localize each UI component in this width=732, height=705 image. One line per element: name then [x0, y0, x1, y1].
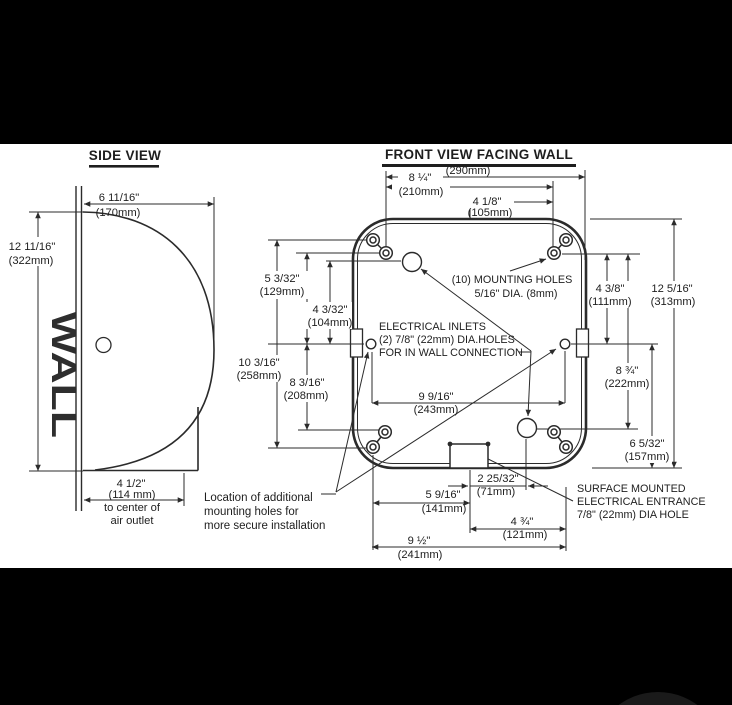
- dim-depth-in: 6 11/16": [99, 192, 139, 204]
- dim-157-in: 6 5/32": [629, 438, 664, 450]
- note-inlets-1: ELECTRICAL INLETS: [379, 321, 486, 333]
- corner-dark-circle: [592, 692, 724, 705]
- dim-141-mm: (141mm): [422, 503, 467, 515]
- electrical-inlet-hole-top: [403, 253, 422, 272]
- dim-210-mm: (210mm): [399, 186, 444, 198]
- dim-141-in: 5 9/16": [425, 489, 460, 501]
- dim-208-in: 8 3/16": [289, 377, 324, 389]
- dim-313-mm: (313mm): [651, 296, 696, 308]
- left-side-tab: [351, 329, 363, 357]
- dim-243-in: 9 9/16": [418, 391, 453, 403]
- side-title-underline: [89, 165, 159, 168]
- dim-258-in: 10 3/16": [238, 357, 279, 369]
- dim-208-mm: (208mm): [284, 390, 329, 402]
- side-screw-hole: [96, 338, 111, 353]
- dim-241-mm: (241mm): [398, 549, 443, 561]
- dim-depth-mm: (170mm): [96, 207, 141, 219]
- dim-243-mm: (243mm): [414, 404, 459, 416]
- dim-129-mm: (129mm): [260, 286, 305, 298]
- dim-71-in: 2 25/32": [477, 473, 518, 485]
- note-location-1: Location of additional: [204, 492, 313, 504]
- dim-outlet-note1: to center of: [104, 502, 161, 514]
- dim-313-in: 12 5/16": [651, 283, 692, 295]
- dim-290-mm: (290mm): [446, 165, 491, 177]
- dim-104-in: 4 3/32": [312, 304, 347, 316]
- right-side-tab: [577, 329, 589, 357]
- additional-mounting-hole-right: [560, 339, 570, 349]
- dim-111-in: 4 3/8": [596, 283, 625, 295]
- additional-mounting-hole-left: [366, 339, 376, 349]
- dim-210-in: 8 ¼": [409, 172, 432, 184]
- dim-157-mm: (157mm): [625, 451, 670, 463]
- dim-71-mm: (71mm): [477, 486, 516, 498]
- dim-121-mm: (121mm): [503, 529, 548, 541]
- note-inlets-3: FOR IN WALL CONNECTION: [379, 347, 523, 359]
- installation-drawing: SIDE VIEW FRONT VIEW FACING WALL WALL 6 …: [0, 0, 732, 705]
- bottom-notch: [448, 442, 491, 468]
- dim-222-mm: (222mm): [605, 378, 650, 390]
- note-surface-3: 7/8" (22mm) DIA HOLE: [577, 509, 689, 521]
- electrical-inlet-hole-bottom: [518, 419, 537, 438]
- dim-129-in: 5 3/32": [264, 273, 299, 285]
- note-mounting-holes-1: (10) MOUNTING HOLES: [452, 274, 573, 286]
- dim-height-mm: (322mm): [9, 255, 54, 267]
- dim-222-in: 8 ¾": [616, 365, 639, 377]
- wall-label: WALL: [44, 312, 82, 438]
- dim-241-in: 9 ½": [408, 535, 431, 547]
- front-view-title: FRONT VIEW FACING WALL: [385, 147, 573, 162]
- dim-outlet-mm: (114 mm): [108, 489, 155, 501]
- note-location-2: mounting holes for: [204, 506, 299, 518]
- dim-258-mm: (258mm): [237, 370, 282, 382]
- dim-height-in: 12 11/16": [9, 241, 56, 253]
- note-inlets-2: (2) 7/8" (22mm) DIA.HOLES: [379, 334, 515, 346]
- dim-outlet-note2: air outlet: [111, 515, 155, 527]
- dim-111-mm: (111mm): [588, 296, 631, 308]
- note-location-3: more secure installation: [204, 520, 325, 532]
- side-view-title: SIDE VIEW: [89, 148, 161, 163]
- dim-121-in: 4 ¾": [511, 516, 534, 528]
- dim-104-mm: (104mm): [308, 317, 353, 329]
- note-surface-2: ELECTRICAL ENTRANCE: [577, 496, 706, 508]
- note-mounting-holes-2: 5/16" DIA. (8mm): [474, 288, 557, 300]
- screen: SIDE VIEW FRONT VIEW FACING WALL WALL 6 …: [0, 0, 732, 705]
- dim-105-mm: (105mm): [468, 207, 513, 219]
- note-surface-1: SURFACE MOUNTED: [577, 483, 686, 495]
